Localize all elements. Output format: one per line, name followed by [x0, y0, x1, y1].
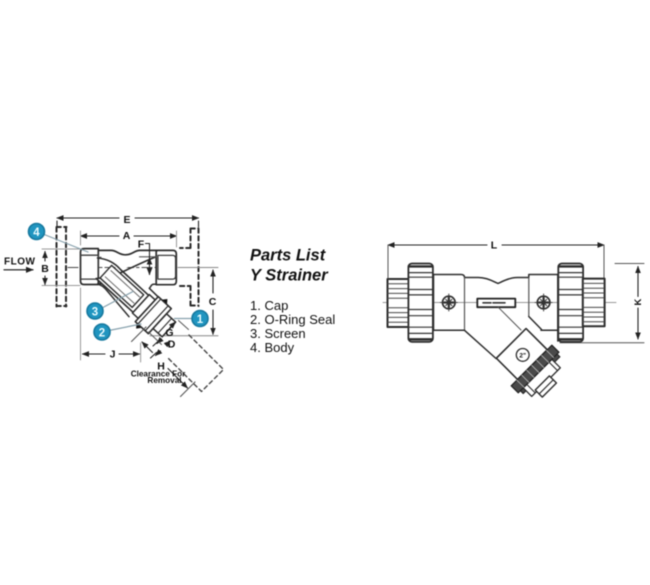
svg-text:4: 4 — [33, 227, 40, 239]
svg-text:3. Screen: 3. Screen — [250, 326, 306, 341]
svg-text:2": 2" — [519, 352, 526, 359]
svg-text:C: C — [209, 296, 217, 308]
svg-text:K: K — [633, 298, 644, 305]
svg-text:J: J — [110, 348, 116, 360]
svg-text:1: 1 — [197, 314, 204, 326]
svg-text:L: L — [491, 239, 498, 251]
svg-text:B: B — [41, 263, 49, 275]
svg-text:D: D — [168, 338, 176, 350]
svg-text:Y Strainer: Y Strainer — [250, 267, 329, 285]
svg-text:G: G — [165, 327, 173, 339]
svg-text:FLOW: FLOW — [4, 257, 35, 268]
svg-text:3: 3 — [92, 306, 98, 318]
svg-text:A: A — [123, 230, 131, 242]
svg-text:1. Cap: 1. Cap — [250, 298, 288, 313]
svg-text:2: 2 — [99, 327, 105, 339]
svg-text:Removal: Removal — [147, 376, 181, 385]
svg-text:F: F — [138, 239, 145, 251]
svg-text:Parts List: Parts List — [250, 247, 327, 265]
svg-text:2. O-Ring Seal: 2. O-Ring Seal — [250, 312, 335, 327]
svg-text:E: E — [123, 214, 130, 226]
svg-text:4. Body: 4. Body — [250, 340, 295, 355]
